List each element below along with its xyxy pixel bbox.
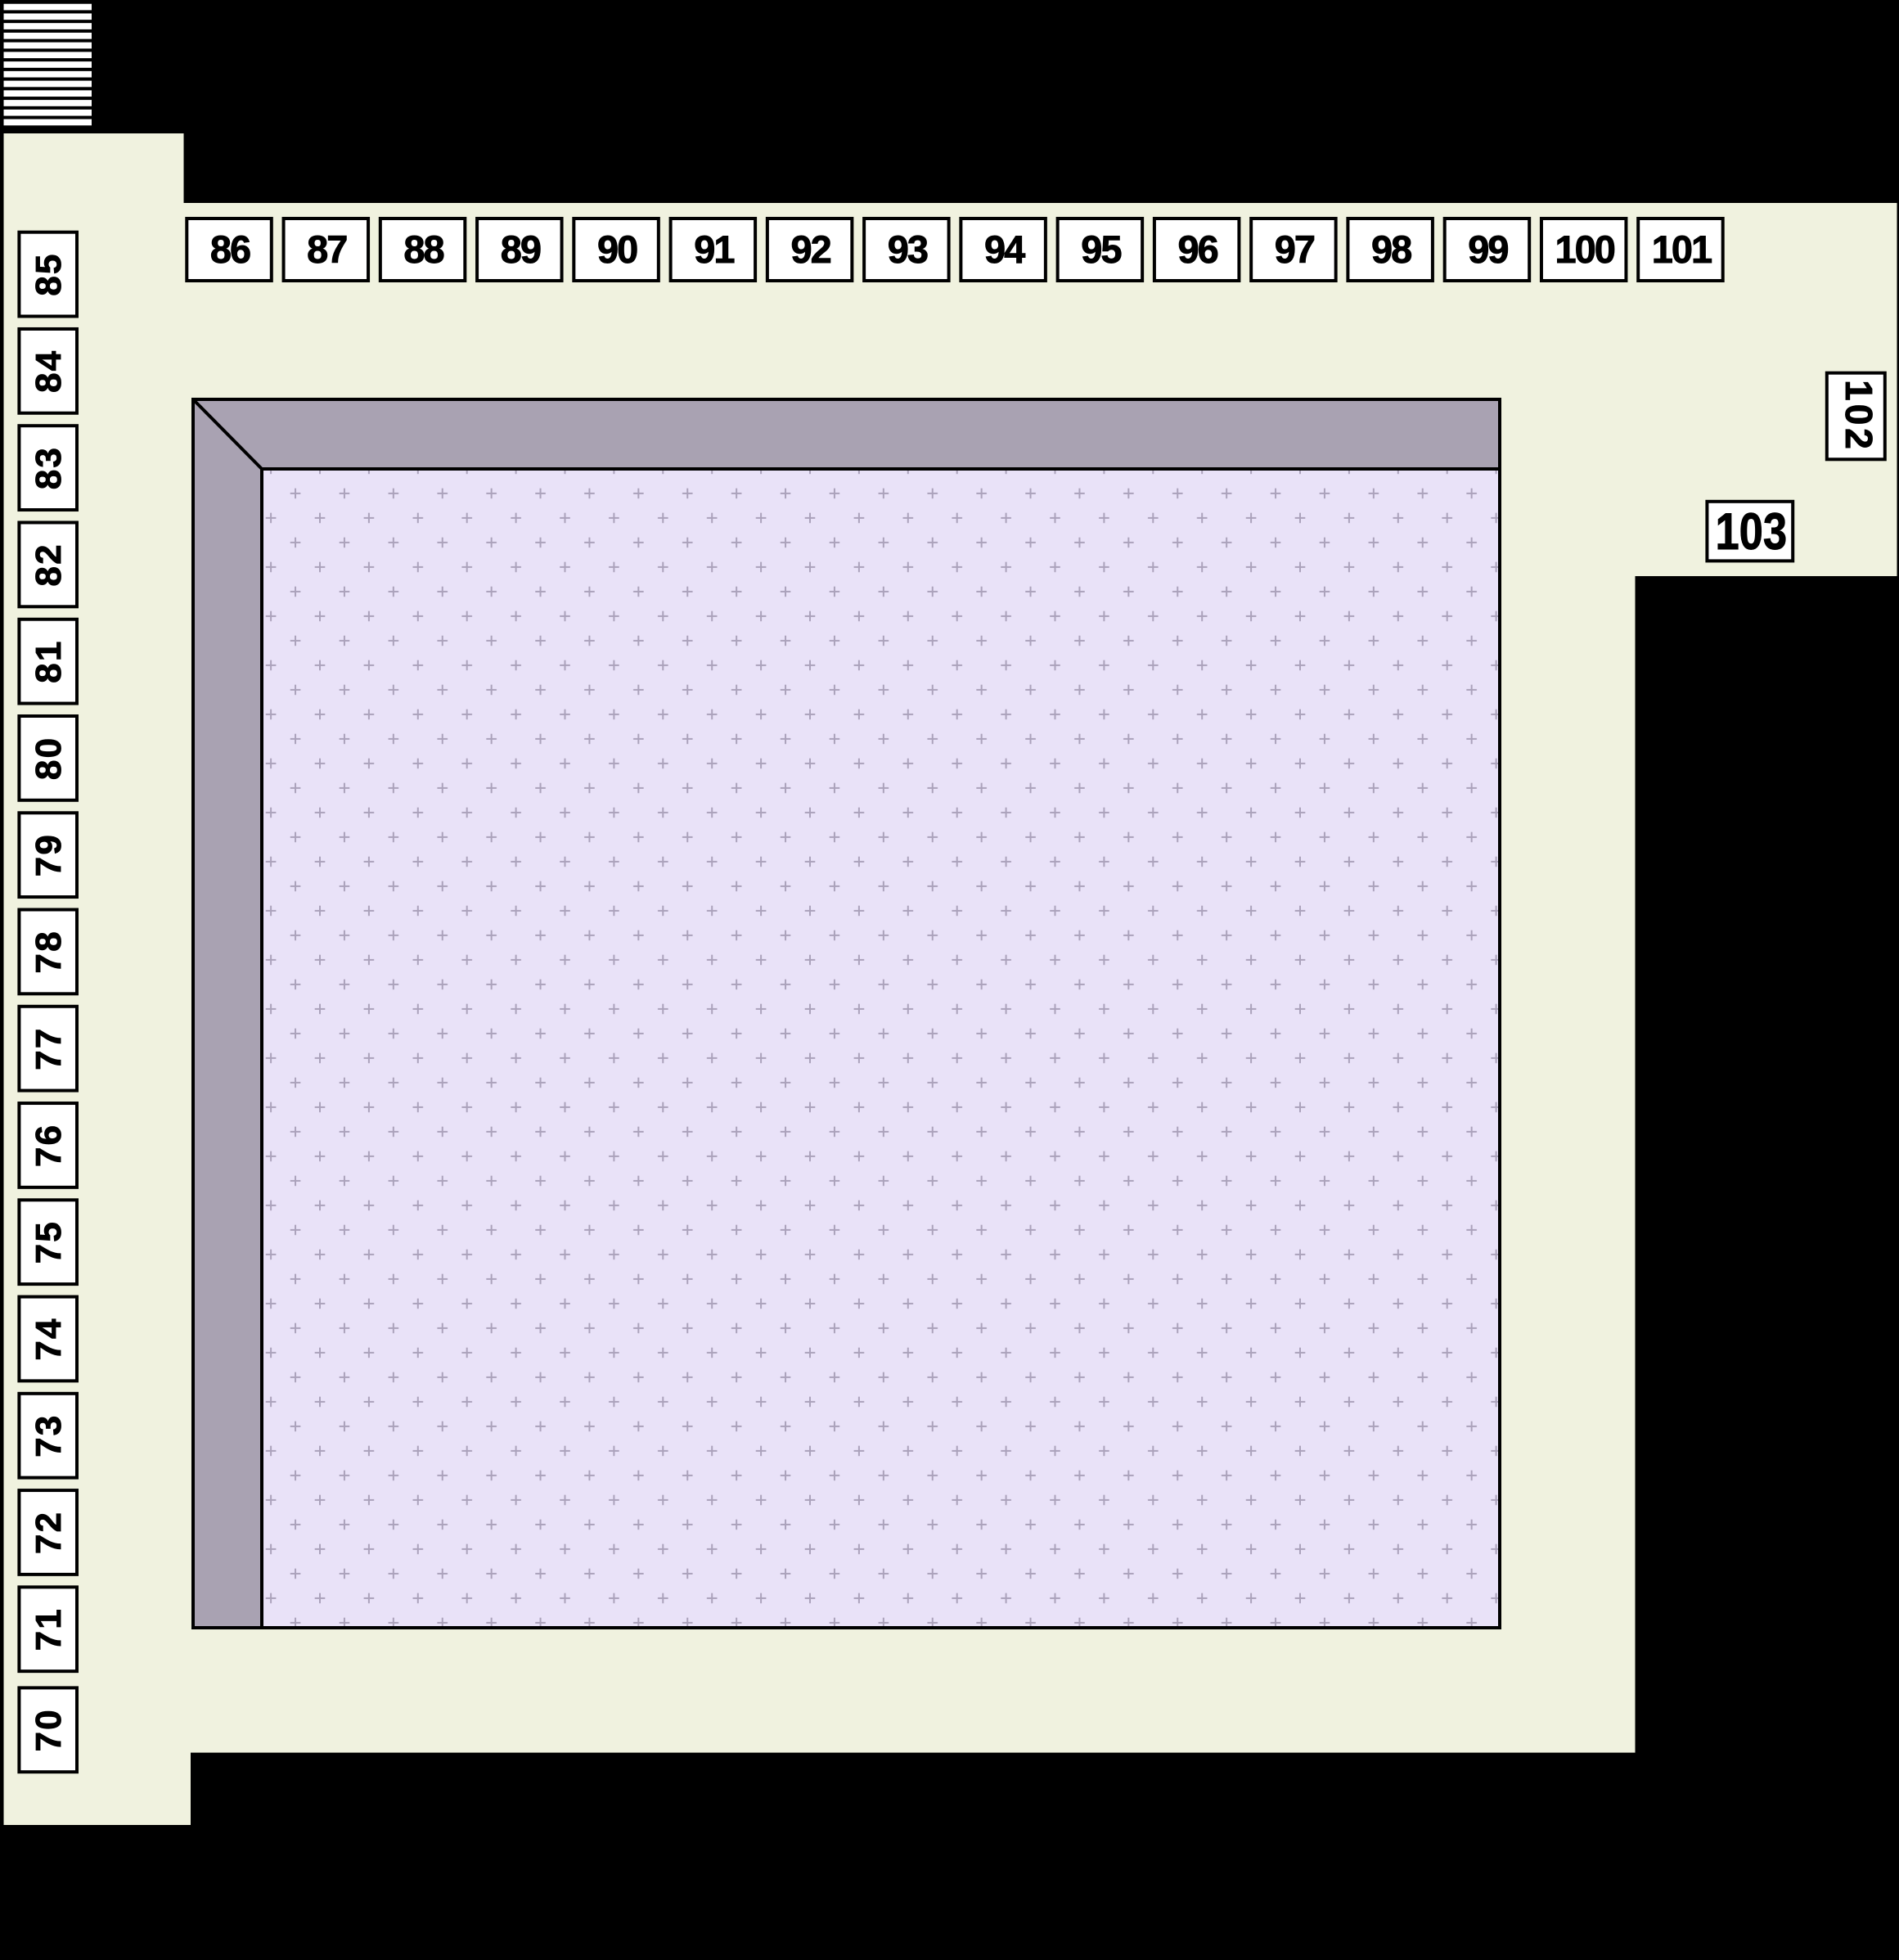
svg-text:97: 97 [1275,228,1315,271]
svg-text:98: 98 [1371,228,1411,271]
svg-text:74: 74 [29,1317,69,1360]
svg-text:70: 70 [29,1708,69,1751]
svg-text:90: 90 [597,228,637,271]
svg-text:102: 102 [1838,380,1880,453]
svg-text:91: 91 [694,228,734,271]
svg-text:88: 88 [403,228,443,271]
svg-text:85: 85 [29,252,69,295]
svg-text:101: 101 [1652,228,1712,271]
svg-text:80: 80 [29,737,69,780]
svg-text:71: 71 [29,1607,69,1651]
svg-text:78: 78 [29,930,69,973]
svg-text:72: 72 [29,1511,69,1554]
svg-text:103: 103 [1715,502,1787,561]
svg-text:75: 75 [29,1220,69,1264]
svg-text:92: 92 [790,228,830,271]
svg-text:87: 87 [307,228,347,271]
svg-text:89: 89 [501,228,541,271]
svg-text:77: 77 [29,1027,69,1070]
svg-text:83: 83 [29,446,69,489]
svg-text:76: 76 [29,1124,69,1167]
svg-text:96: 96 [1178,228,1218,271]
svg-text:93: 93 [888,228,928,271]
svg-text:86: 86 [210,228,250,271]
svg-text:82: 82 [29,543,69,586]
svg-text:94: 94 [984,228,1025,271]
svg-text:84: 84 [29,349,69,393]
svg-text:100: 100 [1555,228,1614,271]
svg-text:79: 79 [29,833,69,876]
svg-text:81: 81 [29,639,69,683]
svg-text:73: 73 [29,1414,69,1458]
svg-text:99: 99 [1468,228,1508,271]
svg-text:95: 95 [1081,228,1121,271]
